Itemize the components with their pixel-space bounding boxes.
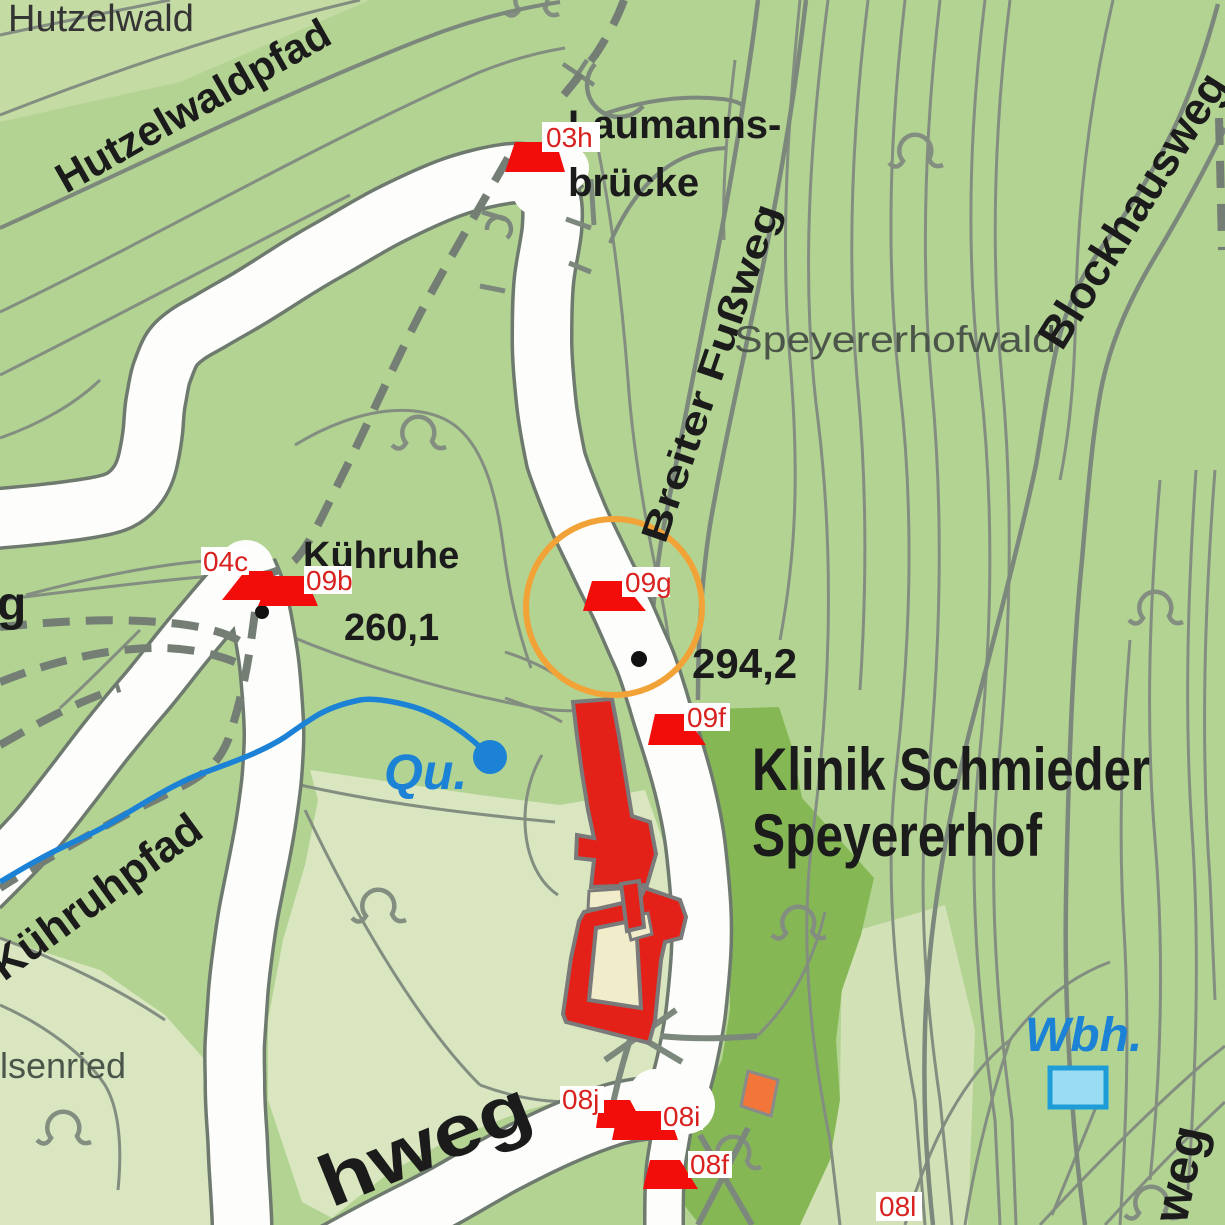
svg-text:08l: 08l [879, 1191, 916, 1222]
svg-text:Speyererhofwald: Speyererhofwald [734, 319, 1056, 360]
svg-text:294,2: 294,2 [692, 640, 797, 687]
svg-text:09g: 09g [625, 567, 672, 598]
svg-text:Qu.: Qu. [384, 744, 467, 800]
svg-text:08i: 08i [663, 1101, 700, 1132]
svg-text:09b: 09b [306, 565, 353, 596]
svg-text:brücke: brücke [568, 161, 699, 205]
svg-text:Laumanns-: Laumanns- [568, 103, 781, 147]
svg-text:g: g [0, 578, 26, 631]
svg-text:04c: 04c [203, 546, 248, 577]
svg-text:Speyererhof: Speyererhof [752, 802, 1043, 869]
svg-text:lsenried: lsenried [0, 1045, 126, 1086]
svg-text:08f: 08f [690, 1149, 729, 1180]
svg-text:09f: 09f [687, 702, 726, 733]
svg-text:Hutzelwald: Hutzelwald [8, 0, 194, 40]
svg-text:Wbh.: Wbh. [1025, 1009, 1142, 1062]
svg-text:03h: 03h [546, 122, 593, 153]
svg-text:08j: 08j [562, 1084, 599, 1115]
svg-text:260,1: 260,1 [344, 607, 439, 649]
svg-text:Klinik Schmieder: Klinik Schmieder [752, 736, 1150, 803]
